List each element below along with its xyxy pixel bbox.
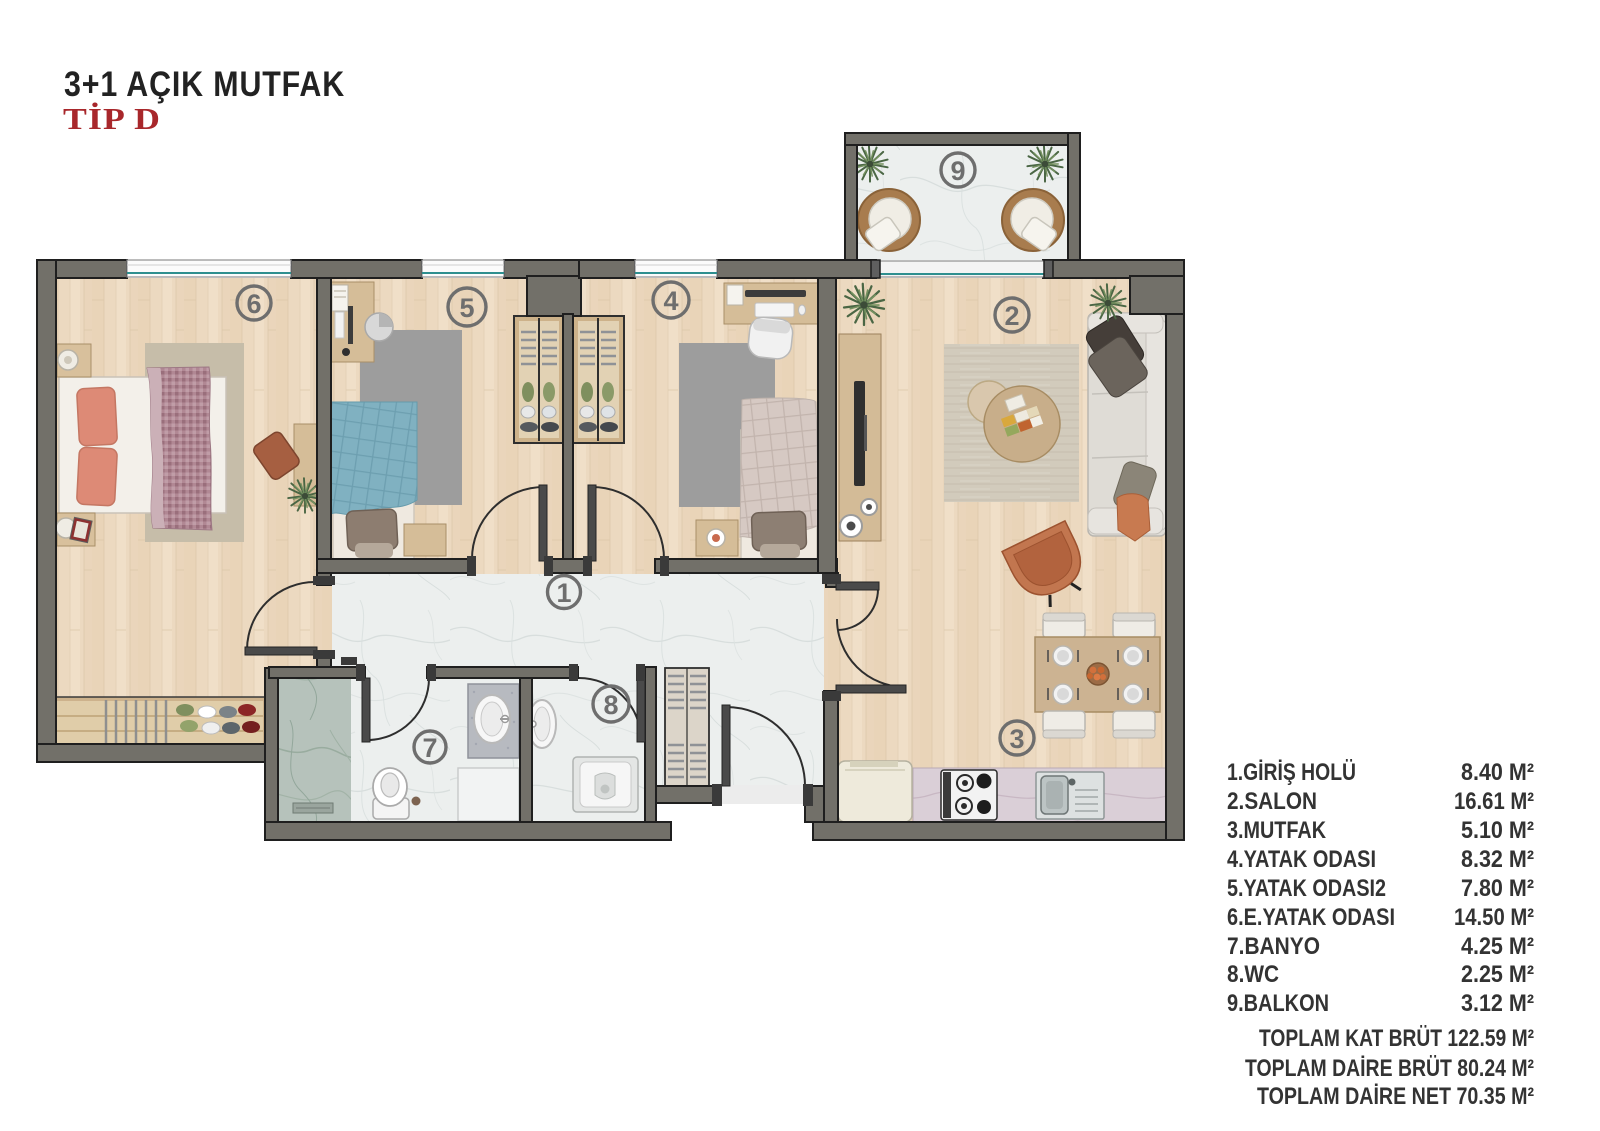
svg-text:3.12 M²: 3.12 M² xyxy=(1461,990,1534,1017)
svg-text:16.61 M²: 16.61 M² xyxy=(1454,788,1534,815)
svg-text:8.32 M²: 8.32 M² xyxy=(1461,846,1534,873)
svg-text:6.E.YATAK ODASI: 6.E.YATAK ODASI xyxy=(1227,904,1395,931)
svg-text:3: 3 xyxy=(1009,724,1024,754)
svg-text:7: 7 xyxy=(422,733,437,763)
svg-text:3+1 AÇIK MUTFAK: 3+1 AÇIK MUTFAK xyxy=(64,65,345,104)
svg-text:8: 8 xyxy=(603,690,618,720)
svg-text:2: 2 xyxy=(1004,301,1019,331)
svg-text:7.BANYO: 7.BANYO xyxy=(1227,933,1320,960)
svg-text:9.BALKON: 9.BALKON xyxy=(1227,990,1329,1017)
svg-text:1: 1 xyxy=(556,578,571,608)
svg-text:8.40 M²: 8.40 M² xyxy=(1461,759,1534,786)
svg-text:8.WC: 8.WC xyxy=(1227,961,1279,988)
svg-text:4.YATAK ODASI: 4.YATAK ODASI xyxy=(1227,846,1376,873)
svg-text:5.YATAK ODASI2: 5.YATAK ODASI2 xyxy=(1227,875,1386,902)
svg-text:4.25 M²: 4.25 M² xyxy=(1461,933,1534,960)
svg-text:3.MUTFAK: 3.MUTFAK xyxy=(1227,817,1327,844)
svg-text:5: 5 xyxy=(459,293,474,323)
svg-text:5.10 M²: 5.10 M² xyxy=(1461,817,1534,844)
svg-text:TOPLAM DAİRE NET 70.35 M²: TOPLAM DAİRE NET 70.35 M² xyxy=(1257,1083,1534,1110)
svg-text:TOPLAM KAT BRÜT 122.59 M²: TOPLAM KAT BRÜT 122.59 M² xyxy=(1259,1025,1534,1052)
svg-text:4: 4 xyxy=(663,286,678,316)
svg-text:14.50 M²: 14.50 M² xyxy=(1454,904,1534,931)
svg-text:2.25 M²: 2.25 M² xyxy=(1461,961,1534,988)
svg-text:TOPLAM DAİRE BRÜT 80.24 M²: TOPLAM DAİRE BRÜT 80.24 M² xyxy=(1245,1055,1534,1082)
svg-text:9: 9 xyxy=(950,156,965,186)
svg-text:6: 6 xyxy=(246,289,261,319)
svg-text:TİP D: TİP D xyxy=(63,101,161,136)
svg-text:7.80 M²: 7.80 M² xyxy=(1461,875,1534,902)
svg-text:1.GİRİŞ HOLÜ: 1.GİRİŞ HOLÜ xyxy=(1227,759,1356,786)
svg-text:2.SALON: 2.SALON xyxy=(1227,788,1317,815)
